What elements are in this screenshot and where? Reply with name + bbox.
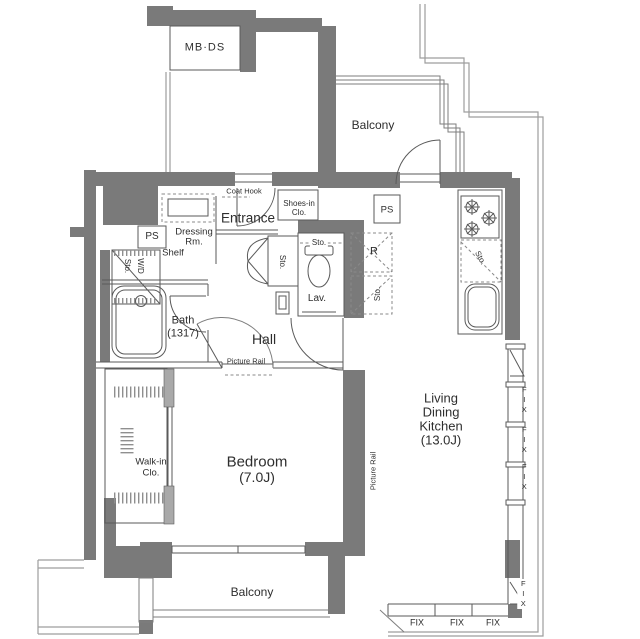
label-bath-2: (1317) — [167, 329, 199, 340]
walkin-sliding-door — [164, 369, 174, 524]
label-lav: Lav. — [308, 294, 326, 304]
label-bedroom-2: (7.0J) — [239, 470, 275, 484]
label-bedroom-1: Bedroom — [227, 455, 288, 470]
hall-closet — [247, 236, 298, 286]
floor-plan-drawing — [0, 0, 640, 639]
toilet-icon — [305, 246, 333, 287]
label-fix-east-1: FIX — [520, 385, 528, 415]
ldk-south-fix-windows — [388, 604, 508, 616]
label-fix-south-1: FIX — [410, 619, 424, 628]
label-bath-1: Bath — [172, 316, 195, 327]
label-fix-east-3: FIX — [520, 462, 528, 492]
label-entrance: Entrance — [221, 211, 275, 225]
balcony-top-door-swing — [396, 140, 440, 184]
label-ldk-3: Kitchen — [419, 420, 462, 433]
label-fix-east-2: FIX — [520, 425, 528, 455]
label-fix-south-2: FIX — [450, 619, 464, 628]
sink-icon — [465, 284, 499, 330]
walkin-closet — [105, 369, 167, 523]
label-sto-lav: Sto. — [310, 239, 328, 247]
label-ldk-1: Living — [424, 392, 458, 405]
label-picture-rail-h: Picture Rail — [227, 357, 265, 365]
label-balcony-bottom: Balcony — [231, 586, 274, 598]
hall-cabinet — [276, 292, 289, 314]
floor-plan: MB·DS Balcony Coat Hook Entrance Shoes-i… — [0, 0, 640, 639]
label-fix-east-4: FIX — [517, 579, 529, 609]
walls — [70, 6, 522, 634]
label-picture-rail-v: Picture Rail — [369, 452, 377, 490]
label-fridge: R — [370, 247, 378, 258]
label-sto-wd-wd: W/D — [136, 258, 144, 274]
label-hall: Hall — [252, 332, 276, 346]
label-walkin-2: Clo. — [143, 468, 160, 478]
bedroom-balcony-window — [172, 546, 305, 553]
entrance-step-line — [216, 196, 278, 264]
label-ldk-4: (13.0J) — [421, 434, 461, 447]
label-balcony-top: Balcony — [352, 119, 395, 131]
label-coat-hook: Coat Hook — [226, 187, 261, 195]
label-sto-wd-sto: Sto. — [123, 259, 131, 273]
stove-icon — [461, 196, 499, 238]
label-dressing-2: Rm. — [185, 237, 202, 247]
label-ps-kitchen: PS — [381, 205, 394, 215]
shelf-dashed-outline — [162, 194, 214, 222]
label-shoes-clo-1: Shoes-in — [283, 200, 315, 208]
label-mbds: MB·DS — [185, 43, 225, 54]
label-sto-hall: Sto. — [278, 255, 286, 269]
label-shoes-clo-2: Clo. — [292, 209, 306, 217]
label-shelf: Shelf — [162, 248, 184, 258]
label-ps-left: PS — [145, 232, 158, 242]
label-ldk-2: Dining — [423, 406, 460, 419]
label-sto-fridge: Sto. — [374, 287, 382, 301]
bathtub-icon — [112, 286, 166, 358]
label-fix-south-3: FIX — [486, 619, 500, 628]
label-walkin-1: Walk-in — [135, 457, 166, 467]
